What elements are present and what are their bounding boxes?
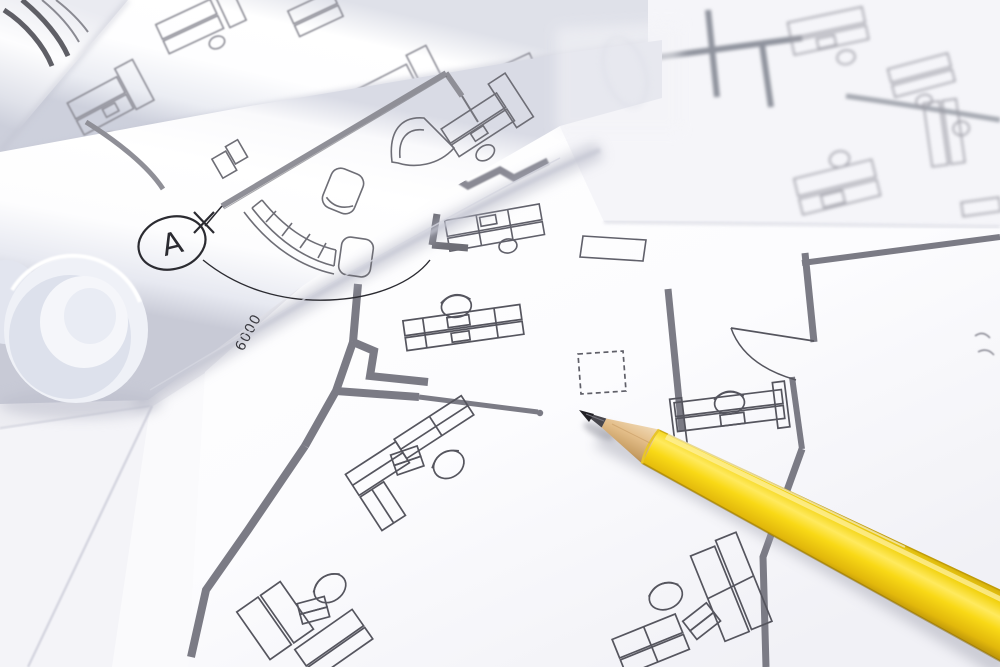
blueprint-photo: A 6000 [0,0,1000,667]
photo-canvas: A 6000 [0,0,1000,667]
wall-end-cap [537,410,543,416]
wall-line [353,284,358,342]
roll-end-coil-inner [64,288,116,344]
